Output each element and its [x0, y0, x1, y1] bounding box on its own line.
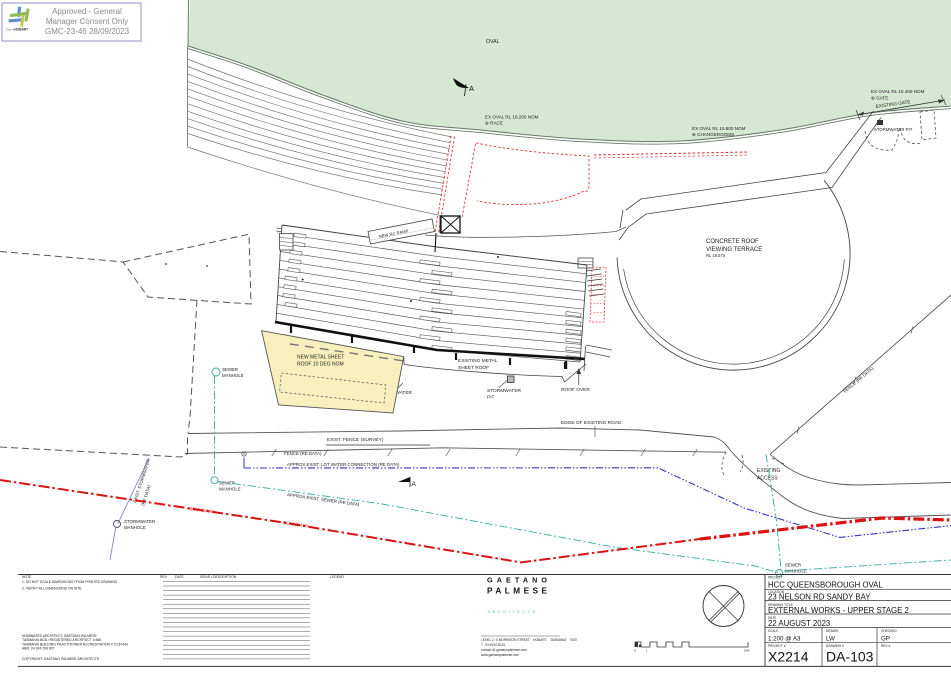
svg-text:LW: LW — [826, 636, 835, 643]
svg-text:SHEET ROOF: SHEET ROOF — [458, 365, 489, 371]
svg-text:⊕ CHANGEROOMS: ⊕ CHANGEROOMS — [692, 132, 734, 137]
svg-text:DRAWN: DRAWN — [826, 629, 839, 633]
svg-text:OVAL: OVAL — [486, 39, 500, 45]
svg-text:10M: 10M — [744, 649, 750, 653]
svg-text:EDGE OF EXISTING ROAD: EDGE OF EXISTING ROAD — [561, 420, 622, 426]
svg-text:SEWER: SEWER — [219, 481, 235, 486]
svg-text:⊕ RACE: ⊕ RACE — [485, 121, 503, 126]
svg-text:GAETANO: GAETANO — [487, 576, 551, 585]
svg-text:ISSUE / DESCRIPTION: ISSUE / DESCRIPTION — [200, 575, 237, 579]
svg-text:contact @ gaetanopalmese.com: contact @ gaetanopalmese.com — [481, 648, 527, 652]
svg-text:www.gaetanopalmese.com: www.gaetanopalmese.com — [481, 653, 519, 657]
svg-text:EXIST. FENCE (SURVEY): EXIST. FENCE (SURVEY) — [327, 437, 384, 443]
svg-text:CHECKED: CHECKED — [881, 629, 897, 633]
svg-text:GMC-23-46 28/09/2023: GMC-23-46 28/09/2023 — [45, 27, 130, 36]
svg-text:RL 19.570: RL 19.570 — [706, 253, 726, 258]
svg-text:EXTERNAL WORKS - UPPER STAGE 2: EXTERNAL WORKS - UPPER STAGE 2 — [768, 606, 909, 615]
svg-text:2. VERIFY ALL DIMENSIONS ON SI: 2. VERIFY ALL DIMENSIONS ON SITE — [22, 586, 82, 590]
svg-text:FENCE (RE DATA): FENCE (RE DATA) — [284, 451, 322, 456]
svg-text:ACCESS: ACCESS — [757, 476, 778, 482]
svg-text:EX OVAL RL 16.200 NOM: EX OVAL RL 16.200 NOM — [485, 115, 539, 120]
svg-text:NOTE: NOTE — [22, 575, 32, 579]
svg-text:EX OVAL RL 15.400 NOM: EX OVAL RL 15.400 NOM — [871, 89, 925, 94]
svg-text:MANHOLE: MANHOLE — [124, 525, 146, 530]
svg-text:CONCRETE ROOF: CONCRETE ROOF — [706, 239, 759, 245]
svg-text:22 AUGUST 2023: 22 AUGUST 2023 — [768, 619, 830, 628]
svg-text:PROJECT: PROJECT — [768, 575, 783, 579]
svg-text:⊕ GATE: ⊕ GATE — [871, 96, 888, 101]
svg-text:A: A — [412, 481, 417, 488]
svg-text:DATE: DATE — [175, 575, 185, 579]
svg-text:X2214: X2214 — [768, 649, 809, 665]
svg-text:SEWER: SEWER — [785, 563, 801, 568]
svg-text:1. DO NOT SCALE DIMENSIONS FRO: 1. DO NOT SCALE DIMENSIONS FROM PRINTED … — [22, 580, 118, 584]
svg-text:City of: City of — [6, 28, 15, 32]
svg-text:STORMWATER PIT: STORMWATER PIT — [874, 127, 913, 132]
svg-text:REV #: REV # — [881, 644, 890, 648]
svg-text:ABN: 24 924 298 907: ABN: 24 924 298 907 — [22, 647, 55, 651]
svg-text:SCALE: SCALE — [768, 629, 778, 633]
svg-text:1:200 @ A3: 1:200 @ A3 — [768, 636, 801, 643]
svg-text:EX OVAL RL 15.600 NOM: EX OVAL RL 15.600 NOM — [692, 126, 746, 131]
svg-text:REV: REV — [160, 575, 168, 579]
svg-text:DA-103: DA-103 — [826, 649, 874, 665]
svg-text:Approved - General: Approved - General — [52, 7, 122, 16]
svg-text:NEW METAL SHEET: NEW METAL SHEET — [297, 355, 344, 361]
svg-text:APPROX EXIST. LOT WATER CONNEC: APPROX EXIST. LOT WATER CONNECTION (RE D… — [287, 462, 400, 467]
svg-text:ARCHITECTS: ARCHITECTS — [488, 610, 538, 614]
svg-text:23 NELSON RD SANDY BAY: 23 NELSON RD SANDY BAY — [768, 593, 871, 602]
svg-text:STORMWATER: STORMWATER — [124, 519, 155, 524]
svg-text:STORMWATER: STORMWATER — [487, 388, 522, 394]
svg-text:T. 03 6234 5243: T. 03 6234 5243 — [481, 643, 505, 647]
svg-text:ROOF 10 DEG NOM: ROOF 10 DEG NOM — [297, 362, 344, 368]
svg-text:SEWER: SEWER — [222, 367, 238, 372]
svg-text:MANHOLE: MANHOLE — [219, 487, 241, 492]
svg-text:LEVEL 1 / 5 MORRISON STREET: LEVEL 1 / 5 MORRISON STREET HOBART TASMA… — [481, 638, 577, 642]
svg-text:ROOF OVER: ROOF OVER — [561, 387, 590, 393]
svg-text:Manager Consent Only: Manager Consent Only — [46, 17, 128, 26]
svg-text:EXISTING METAL: EXISTING METAL — [458, 358, 498, 364]
svg-text:PIT: PIT — [487, 395, 495, 401]
svg-text:GP: GP — [881, 636, 890, 643]
svg-text:LEGEND: LEGEND — [330, 575, 344, 579]
svg-text:COPYRIGHT: GAETANO PALMESE ARC: COPYRIGHT: GAETANO PALMESE ARCHITECTS — [22, 657, 100, 661]
svg-text:A: A — [469, 84, 474, 93]
svg-text:HCC QUEENSBOROUGH OVAL: HCC QUEENSBOROUGH OVAL — [768, 581, 883, 590]
svg-text:HOBART: HOBART — [15, 28, 29, 32]
svg-text:MANHOLE: MANHOLE — [222, 373, 244, 378]
svg-text:PALMESE: PALMESE — [487, 587, 550, 596]
